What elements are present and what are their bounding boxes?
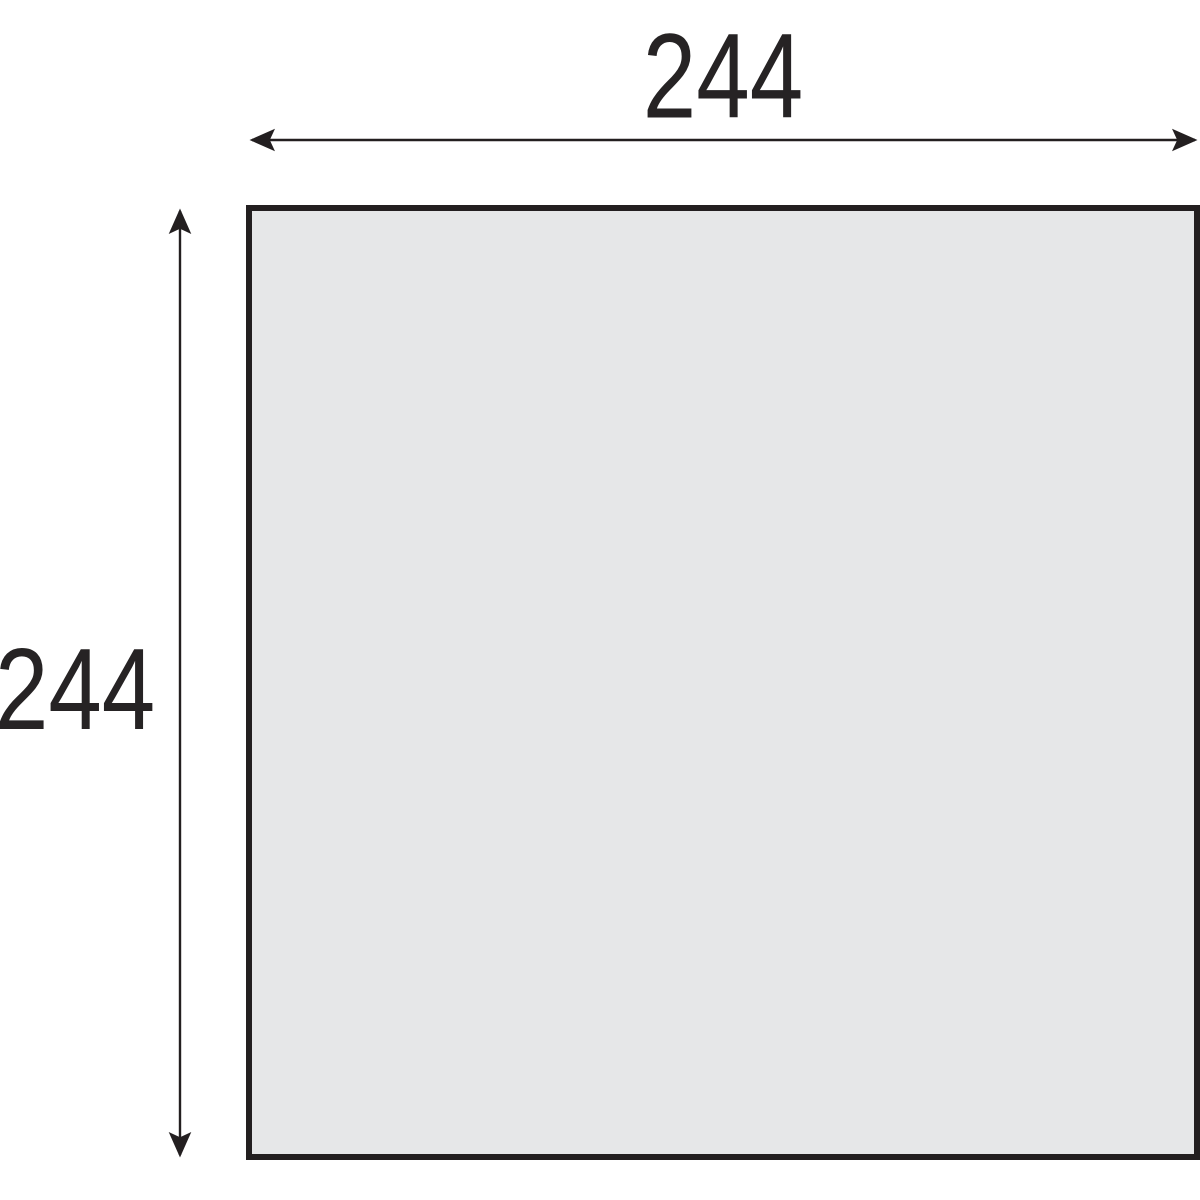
svg-text:244: 244: [0, 624, 155, 754]
svg-text:244: 244: [643, 9, 803, 144]
